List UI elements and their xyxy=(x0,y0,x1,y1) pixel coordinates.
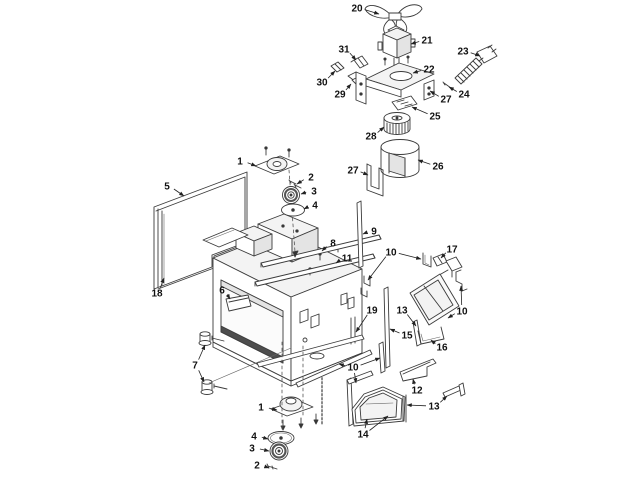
part-coupler-upper xyxy=(283,187,300,204)
callout-13: 13 xyxy=(396,306,408,317)
callout-24: 24 xyxy=(458,90,470,101)
leader-line-10 xyxy=(361,358,380,365)
part-sleeve xyxy=(331,62,344,72)
part-spacer-bar xyxy=(443,383,465,397)
callout-14: 14 xyxy=(357,430,369,441)
part-z-bracket xyxy=(400,359,436,381)
callout-6: 6 xyxy=(219,286,225,297)
part-turntable-motor-lower xyxy=(271,397,318,430)
leader-line-24 xyxy=(449,87,457,92)
callout-28: 28 xyxy=(365,132,377,143)
leader-line-13 xyxy=(407,405,426,406)
callout-1: 1 xyxy=(237,157,243,168)
leader-line-7 xyxy=(199,345,205,360)
callout-15: 15 xyxy=(401,331,413,342)
leader-line-29 xyxy=(346,84,351,90)
leader-line-9 xyxy=(363,233,366,234)
callout-7: 7 xyxy=(192,361,198,372)
callout-16: 16 xyxy=(436,343,448,354)
callout-5: 5 xyxy=(164,182,170,193)
part-air-duct xyxy=(410,270,459,346)
callout-3: 3 xyxy=(249,444,255,455)
leader-line-26 xyxy=(418,160,430,164)
leader-line-3 xyxy=(301,192,306,194)
part-turntable-motor-upper xyxy=(255,147,299,174)
leader-line-15 xyxy=(390,329,400,333)
callout-1: 1 xyxy=(258,403,264,414)
diagram-canvas: 2021312322302924272528262712345186891110… xyxy=(0,0,640,480)
callout-27: 27 xyxy=(440,95,452,106)
part-side-bracket xyxy=(424,80,434,100)
callout-25: 25 xyxy=(429,112,441,123)
leader-line-3 xyxy=(260,449,269,451)
callout-10: 10 xyxy=(385,248,397,259)
leader-line-4 xyxy=(262,437,268,439)
callout-10: 10 xyxy=(347,363,359,374)
leader-line-2 xyxy=(297,180,304,184)
callout-13: 13 xyxy=(428,402,440,413)
leader-line-30 xyxy=(328,71,335,78)
part-coupler-lower xyxy=(270,442,288,460)
callout-3: 3 xyxy=(311,187,317,198)
callout-23: 23 xyxy=(457,47,469,58)
leader-line-10 xyxy=(368,257,386,280)
callout-11: 11 xyxy=(342,254,353,265)
callout-31: 31 xyxy=(338,45,350,56)
callout-21: 21 xyxy=(421,36,433,47)
part-corner-post xyxy=(379,342,385,373)
part-duct-bracket xyxy=(418,327,444,344)
callout-26: 26 xyxy=(432,162,444,173)
callout-27: 27 xyxy=(347,166,359,177)
leader-line-25 xyxy=(412,107,428,114)
leader-line-5 xyxy=(174,189,184,196)
callout-10: 10 xyxy=(456,307,468,318)
callout-18: 18 xyxy=(151,289,163,300)
leader-line-10 xyxy=(448,314,455,318)
leader-line-13 xyxy=(407,315,416,327)
callout-29: 29 xyxy=(334,90,346,101)
part-roller-ring-upper xyxy=(282,204,305,216)
part-side-strip-front xyxy=(384,287,390,368)
callout-2: 2 xyxy=(254,461,260,472)
callout-12: 12 xyxy=(411,386,423,397)
callout-9: 9 xyxy=(371,227,377,238)
callout-20: 20 xyxy=(351,4,363,15)
exploded-parts-diagram: 2021312322302924272528262712345186891110… xyxy=(0,0,640,480)
leader-line-4 xyxy=(304,207,308,209)
callout-4: 4 xyxy=(312,201,318,212)
part-z-clip xyxy=(456,270,467,291)
part-fan-motor xyxy=(378,26,415,66)
part-vent-duct xyxy=(352,387,406,426)
callout-22: 22 xyxy=(423,65,435,76)
part-u-bracket xyxy=(367,164,383,196)
leader-line-1 xyxy=(248,163,256,166)
leader-line-31 xyxy=(350,53,356,60)
callout-30: 30 xyxy=(316,78,328,89)
callout-19: 19 xyxy=(366,306,378,317)
callout-8: 8 xyxy=(330,239,336,250)
callout-4: 4 xyxy=(251,432,257,443)
part-blower-wheel xyxy=(384,113,410,135)
part-screw-lower xyxy=(267,464,277,469)
callout-17: 17 xyxy=(446,245,458,256)
leader-line-10 xyxy=(399,253,421,259)
callout-2: 2 xyxy=(308,173,314,184)
leader-line-7 xyxy=(199,370,204,382)
leader-line-28 xyxy=(378,127,384,133)
leader-line-13 xyxy=(440,396,447,402)
leader-line-12 xyxy=(413,379,414,384)
part-blower-housing xyxy=(381,140,419,178)
